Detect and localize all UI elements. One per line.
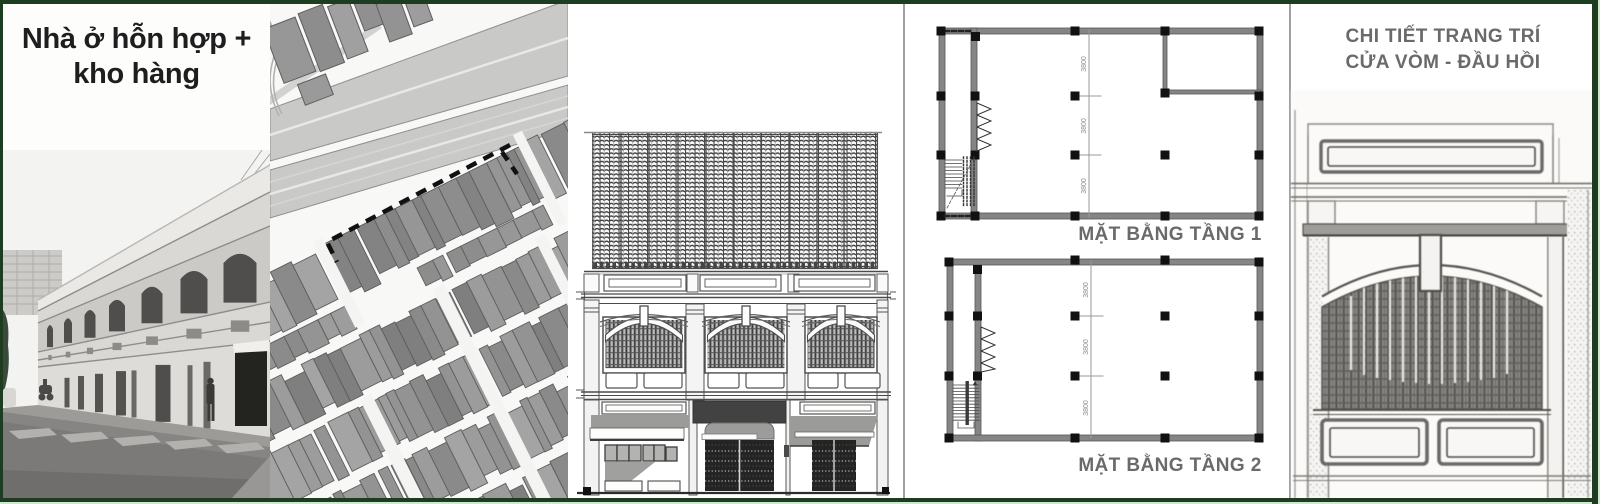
svg-text:3800: 3800 <box>1083 400 1090 416</box>
svg-text:3800: 3800 <box>1081 118 1088 134</box>
svg-text:3800: 3800 <box>1083 339 1090 355</box>
svg-text:3800: 3800 <box>1081 178 1088 194</box>
svg-text:3800: 3800 <box>1081 56 1088 72</box>
svg-text:3800: 3800 <box>1083 282 1090 298</box>
